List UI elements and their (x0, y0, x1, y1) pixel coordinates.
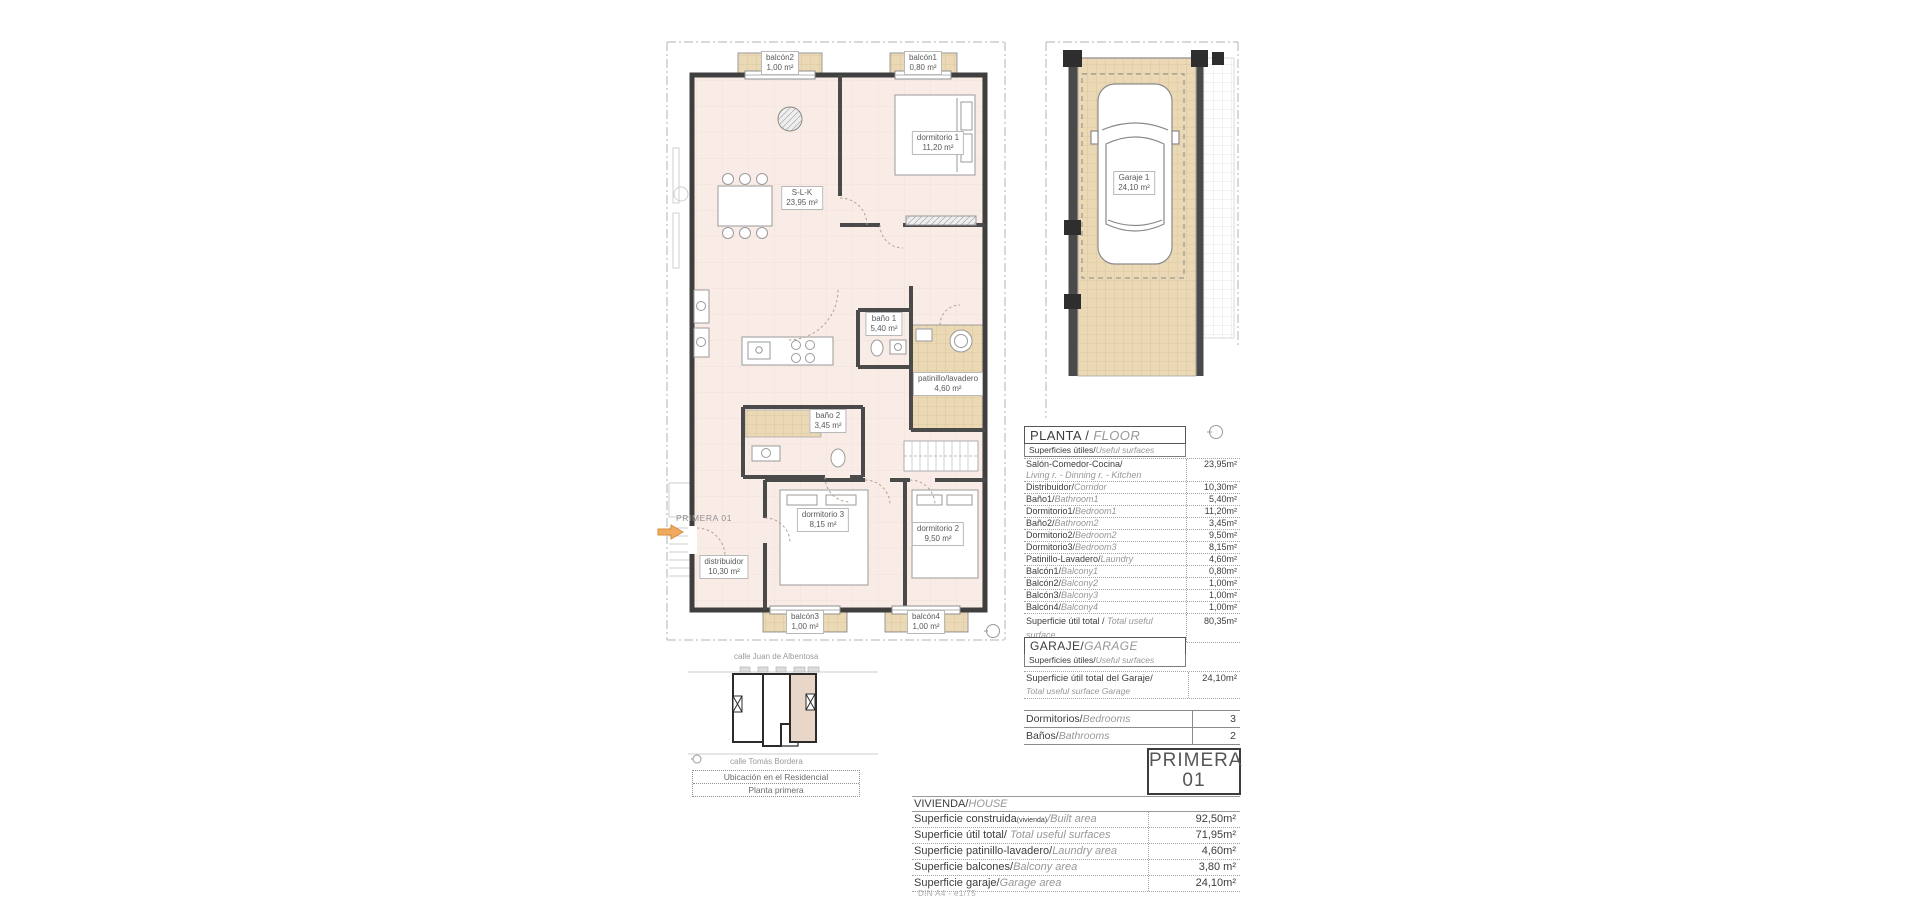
table-row: Patinillo-Lavadero/Laundry4,60m² (1024, 554, 1240, 566)
unit-direction-label: PRIMERA 01 (676, 513, 732, 523)
reference-marker-icon (984, 625, 1000, 638)
table-row: Dormitorio1/Bedroom111,20m² (1024, 506, 1240, 518)
reference-marker-icon (691, 755, 701, 763)
floor-table-subheader: Superficies útiles/Useful surfaces (1024, 444, 1186, 457)
unit-badge-line1: PRIMERA (1149, 751, 1239, 771)
locator-captions: Ubicación en el Residencial Planta prime… (692, 770, 860, 797)
neighbour-unit-hints (669, 148, 691, 576)
garage-table-subheader: Superficies útiles/Useful surfaces (1024, 654, 1186, 667)
room-label-balcon2: balcón21,00 m² (761, 51, 799, 75)
room-label-dormitorio1: dormitorio 111,20 m² (912, 131, 964, 155)
table-row: Salón-Comedor-Cocina/Living r. - Dinning… (1024, 459, 1240, 482)
adjacent-bay-floor (1203, 58, 1234, 338)
unit-direction-arrow-icon (655, 523, 687, 546)
balcony-stubs (740, 667, 819, 672)
locator-drawing (688, 664, 878, 764)
table-row: Baño1/Bathroom15,40m² (1024, 494, 1240, 506)
table-row: Balcón3/Balcony31,00m² (1024, 590, 1240, 602)
floor-table-header: PLANTA / FLOOR (1024, 426, 1186, 444)
table-row: Balcón1/Balcony10,80m² (1024, 566, 1240, 578)
room-label-bano1: baño 15,40 m² (865, 312, 902, 336)
reference-marker-icon (1206, 423, 1224, 446)
locator-caption-2: Planta primera (693, 784, 859, 796)
locator-caption-1: Ubicación en el Residencial (693, 771, 859, 784)
garage-plan-drawing (1042, 28, 1242, 428)
floor-surfaces-table: Salón-Comedor-Cocina/Living r. - Dinning… (1024, 458, 1240, 643)
table-row: Dormitorio3/Bedroom38,15m² (1024, 542, 1240, 554)
table-row: Balcón2/Balcony21,00m² (1024, 578, 1240, 590)
room-label-dormitorio2: dormitorio 29,50 m² (912, 522, 964, 546)
bedrooms-count-row: Dormitorios/Bedrooms 3 (1024, 711, 1240, 728)
room-label-bano2: baño 23,45 m² (809, 409, 846, 433)
apartment-plan-drawing (540, 28, 1040, 653)
table-row: Superficie balcones/Balcony area 3,80 m² (912, 860, 1240, 876)
unit-badge-line2: 01 (1149, 771, 1239, 791)
room-label-slk: S-L-K23,95 m² (781, 186, 823, 210)
table-row: Dormitorio2/Bedroom29,50m² (1024, 530, 1240, 542)
garage-table-header: GARAJE/GARAGE (1024, 637, 1186, 655)
house-table: VIVIENDA/HOUSE Superficie construida(viv… (912, 796, 1240, 892)
table-row: Balcón4/Balcony41,00m² (1024, 602, 1240, 614)
residential-outline (733, 674, 816, 746)
unit-badge: PRIMERA 01 (1147, 748, 1241, 795)
apartment-floor-plan: balcón21,00 m² balcón10,80 m² dormitorio… (540, 28, 1040, 653)
house-table-title: VIVIENDA/HOUSE (912, 797, 1240, 812)
plan-sheet: balcón21,00 m² balcón10,80 m² dormitorio… (0, 0, 1920, 920)
room-label-balcon1: balcón10,80 m² (904, 51, 942, 75)
table-row: Distribuidor/Corridor10,30m² (1024, 482, 1240, 494)
room-label-dormitorio3: dormitorio 38,15 m² (797, 508, 849, 532)
table-row: Superficie útil total/ Total useful surf… (912, 828, 1240, 844)
room-label-balcon3: balcón31,00 m² (786, 610, 824, 634)
table-row: Superficie construida(vivienda)/Built ar… (912, 812, 1240, 828)
street-label-bottom: calle Tomás Bordera (730, 757, 803, 766)
room-label-balcon4: balcón41,00 m² (907, 610, 945, 634)
garage-total-row: Superficie útil total del Garaje/Total u… (1024, 671, 1240, 699)
counts-table: Dormitorios/Bedrooms 3 Baños/Bathrooms 2 (1024, 710, 1240, 745)
table-row: Superficie patinillo-lavadero/Laundry ar… (912, 844, 1240, 860)
street-label-top: calle Juan de Albentosa (734, 652, 819, 661)
garage-floor-plan: Garaje 124,10 m² (1042, 28, 1242, 428)
communal-stairs (904, 441, 978, 471)
room-label-distribuidor: distribuidor10,30 m² (699, 555, 748, 579)
scale-note: DIN A4 - e1/75 (918, 889, 976, 898)
garage-label: Garaje 124,10 m² (1113, 171, 1155, 195)
bathrooms-count-row: Baños/Bathrooms 2 (1024, 728, 1240, 745)
room-label-patinillo: patinillo/lavadero4,60 m² (913, 372, 983, 396)
entrance-opening (688, 526, 697, 554)
table-row: Baño2/Bathroom23,45m² (1024, 518, 1240, 530)
locator-minimap: calle Juan de Albentosa ca (688, 652, 878, 802)
